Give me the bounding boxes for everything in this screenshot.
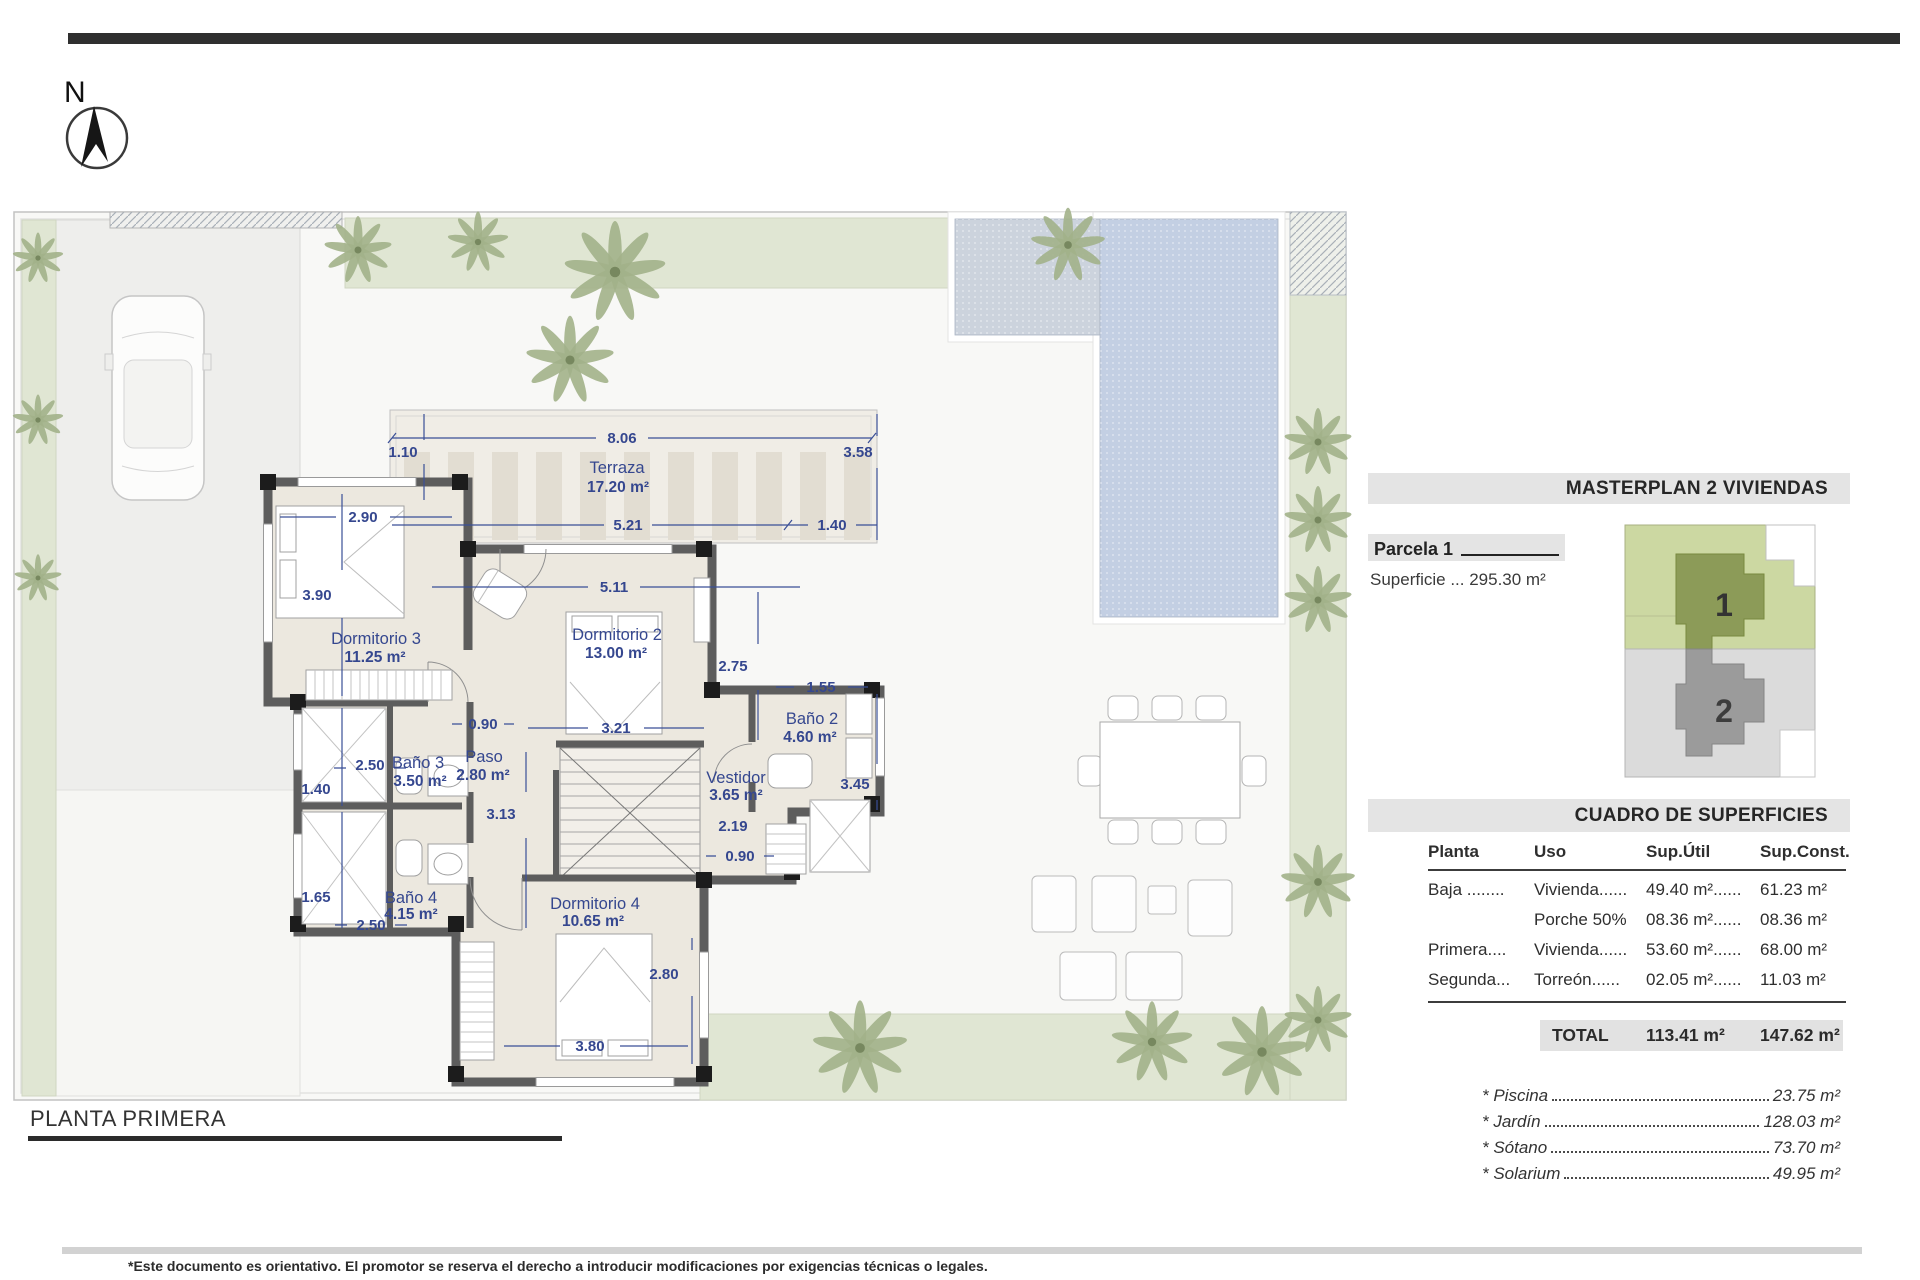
page-title: PLANTA PRIMERA (30, 1106, 226, 1132)
room-area: 11.25 m² (344, 649, 405, 666)
plot-2-label: 2 (1715, 693, 1733, 729)
room-area: 17.20 m² (587, 479, 649, 496)
dim-label: 0.90 (725, 848, 754, 865)
dim-label: 5.11 (600, 579, 628, 596)
dim-label: 2.75 (718, 658, 747, 675)
total-util: 113.41 m² (1646, 1025, 1725, 1046)
table-cell: 08.36 m² (1760, 905, 1846, 935)
room-label: Dormitorio 2 (572, 626, 662, 644)
room-label: Terraza (589, 459, 645, 477)
surface-table-body: Baja ........ Vivienda...... 49.40 m²...… (1428, 871, 1846, 1003)
dim-label: 1.40 (301, 781, 330, 798)
parcela-label: Parcela 1 (1374, 539, 1453, 559)
leader-dots (1545, 1125, 1760, 1127)
dim-label: 1.55 (806, 679, 835, 696)
title-underline (28, 1136, 562, 1141)
dim-label: 2.50 (355, 757, 384, 774)
dim-label: 3.13 (486, 806, 515, 823)
room-area: 2.80 m² (456, 767, 509, 784)
table-cell: Vivienda...... (1534, 875, 1646, 905)
extras-value: 23.75 m² (1773, 1086, 1840, 1106)
table-cell: Vivienda...... (1534, 935, 1646, 965)
superficie-text: Superficie ... 295.30 m² (1370, 570, 1546, 590)
surface-table-header: Planta Uso Sup.Útil Sup.Const. (1428, 842, 1846, 871)
dim-label: 3.58 (843, 444, 872, 461)
extras-item: * Jardín 128.03 m² (1482, 1112, 1840, 1138)
table-cell: 61.23 m² (1760, 875, 1846, 905)
extras-label: * Piscina (1482, 1086, 1548, 1106)
table-cell: Baja ........ (1428, 875, 1534, 905)
room-area: 10.65 m² (562, 913, 624, 930)
extras-label: * Solarium (1482, 1164, 1560, 1184)
dim-label: 5.21 (613, 517, 642, 534)
stairs (560, 748, 700, 878)
parcela-underline (1461, 554, 1559, 556)
room-area: 3.65 m² (709, 787, 762, 804)
plot-notch (1780, 730, 1815, 777)
room-label: Dormitorio 4 (550, 895, 640, 913)
parcela-row: Parcela 1 (1368, 534, 1565, 561)
dim-label: 1.10 (388, 444, 417, 461)
bottom-rule (62, 1247, 1862, 1254)
extras-value: 49.95 m² (1773, 1164, 1840, 1184)
table-cell (1428, 905, 1534, 935)
extras-value: 128.03 m² (1763, 1112, 1840, 1132)
cuadro-title: CUADRO DE SUPERFICIES (1368, 799, 1850, 832)
dim-label: 2.80 (649, 966, 678, 983)
room-label: Baño 2 (786, 710, 838, 728)
dim-label: 3.90 (302, 587, 331, 604)
leader-dots (1564, 1177, 1768, 1179)
total-row: TOTAL 113.41 m² 147.62 m² (1540, 1020, 1843, 1051)
table-cell: 08.36 m²...... (1646, 905, 1760, 935)
room-area: 4.15 m² (384, 906, 437, 923)
extras-item: * Sótano 73.70 m² (1482, 1138, 1840, 1164)
table-cell: Segunda... (1428, 965, 1534, 995)
col-header: Planta (1428, 842, 1534, 862)
table-cell: 11.03 m² (1760, 965, 1846, 995)
room-label: Baño 3 (392, 754, 444, 772)
extras-value: 73.70 m² (1773, 1138, 1840, 1158)
surface-table: Planta Uso Sup.Útil Sup.Const. Baja ....… (1428, 842, 1846, 1003)
table-cell: Porche 50% (1534, 905, 1646, 935)
leader-dots (1551, 1151, 1769, 1153)
col-header: Uso (1534, 842, 1646, 862)
masterplan-diagram: 1 2 (1624, 524, 1816, 779)
floorplan-page: N (0, 0, 1920, 1280)
room-label: Vestidor (706, 769, 766, 787)
dim-label: 3.45 (840, 776, 869, 793)
dim-label: 2.90 (348, 509, 377, 526)
plot-1-label: 1 (1715, 587, 1733, 623)
col-header: Sup.Const. (1760, 842, 1846, 862)
col-header: Sup.Útil (1646, 842, 1760, 862)
room-label: Baño 4 (385, 889, 437, 907)
extras-item: * Solarium 49.95 m² (1482, 1164, 1840, 1190)
dim-label: 8.06 (607, 430, 636, 447)
masterplan-title: MASTERPLAN 2 VIVIENDAS (1368, 473, 1850, 504)
extras-label: * Jardín (1482, 1112, 1541, 1132)
car (105, 296, 211, 500)
room-area: 3.50 m² (393, 773, 446, 790)
table-cell: Primera.... (1428, 935, 1534, 965)
dim-label: 2.50 (356, 917, 385, 934)
room-label: Paso (465, 748, 503, 766)
disclaimer-text: *Este documento es orientativo. El promo… (128, 1258, 988, 1274)
dim-label: 3.21 (601, 720, 630, 737)
extras-list: * Piscina 23.75 m² * Jardín 128.03 m² * … (1482, 1086, 1840, 1190)
room-area: 13.00 m² (585, 645, 647, 662)
dim-label: 2.19 (718, 818, 747, 835)
table-cell: 02.05 m²...... (1646, 965, 1760, 995)
table-cell: 68.00 m² (1760, 935, 1846, 965)
table-cell: Torreón...... (1534, 965, 1646, 995)
total-const: 147.62 m² (1760, 1025, 1840, 1046)
dim-label: 3.80 (575, 1038, 604, 1055)
cuadro-header: CUADRO DE SUPERFICIES (1368, 799, 1850, 832)
entrance-gate (110, 212, 342, 228)
extras-item: * Piscina 23.75 m² (1482, 1086, 1840, 1112)
room-area: 4.60 m² (783, 729, 836, 746)
total-label: TOTAL (1552, 1025, 1609, 1046)
table-cell: 49.40 m²...... (1646, 875, 1760, 905)
room-label: Dormitorio 3 (331, 630, 421, 648)
table-cell: 53.60 m²...... (1646, 935, 1760, 965)
masterplan-header: MASTERPLAN 2 VIVIENDAS (1368, 473, 1850, 504)
dim-label: 1.65 (301, 889, 330, 906)
extras-label: * Sótano (1482, 1138, 1547, 1158)
dim-label: 1.40 (817, 517, 846, 534)
leader-dots (1552, 1099, 1769, 1101)
dim-label: 0.90 (468, 716, 497, 733)
